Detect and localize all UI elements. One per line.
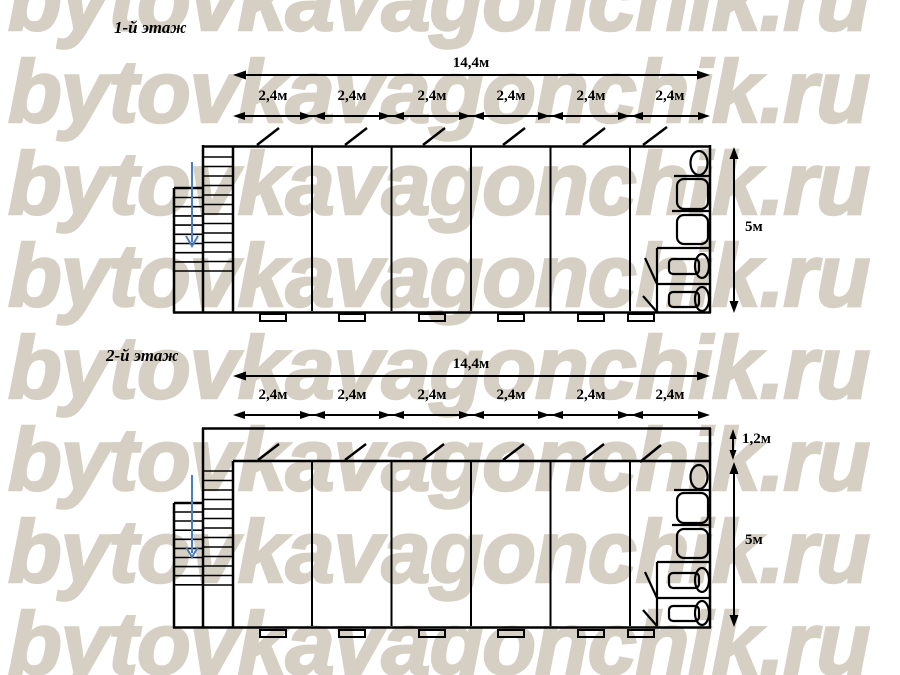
f1-stairs-down-arrow-icon [186, 162, 198, 246]
f1-urinal-icon [695, 287, 709, 311]
f1-height-label: 5м [745, 219, 763, 236]
f2-toilet-icon [677, 529, 708, 558]
f2-door-swings [258, 444, 661, 462]
floor1-title: 1-й этаж [114, 18, 187, 38]
floor2-title: 2-й этаж [106, 346, 179, 366]
floor1-plan [173, 71, 739, 322]
f2-module-width-label: 2,4м [630, 387, 710, 404]
f2-module-width-label: 2,4м [551, 387, 631, 404]
f2-module-dividers [312, 461, 630, 626]
f2-toilet-icon [677, 493, 708, 523]
f1-urinal-icon [695, 254, 709, 278]
f2-height-label: 5м [745, 532, 763, 549]
f2-corridor-width-label: 1,2м [742, 431, 771, 448]
f2-washbasin-icon [691, 465, 708, 489]
f1-foundation-feet [260, 314, 654, 321]
f1-total-width-label: 14,4м [411, 55, 531, 72]
f2-foundation-feet [260, 630, 654, 637]
floor-plan-canvas: bytovkavagonchik.ru bytovkavagonchik.ru … [0, 0, 900, 675]
f1-bathroom-fixtures [643, 151, 709, 312]
f2-module-width-label: 2,4м [471, 387, 551, 404]
f1-module-width-label: 2,4м [471, 88, 551, 105]
f2-dim-modules-arrows [233, 411, 710, 419]
f1-module-width-label: 2,4м [392, 88, 472, 105]
f1-toilet-icon [677, 215, 708, 244]
f2-dim-corridor-arrow [730, 429, 737, 460]
f1-module-width-label: 2,4м [630, 88, 710, 105]
f2-urinal-icon [695, 601, 709, 625]
f2-dim-height-arrow [730, 462, 739, 627]
f2-stairs-down-arrow-icon [186, 475, 198, 557]
f1-module-width-label: 2,4м [233, 88, 313, 105]
f1-module-width-label: 2,4м [551, 88, 631, 105]
f2-module-width-label: 2,4м [392, 387, 472, 404]
f2-total-width-label: 14,4м [411, 356, 531, 373]
f2-bathroom-fixtures [643, 465, 709, 626]
f1-dim-modules-arrows [233, 112, 710, 120]
f1-module-dividers [312, 147, 630, 311]
f1-door-swings [257, 127, 667, 145]
f1-dim-height-arrow [730, 147, 739, 313]
floor2-plan [173, 372, 739, 638]
f2-module-width-label: 2,4м [233, 387, 313, 404]
f1-toilet-icon [677, 179, 708, 209]
f1-washbasin-icon [691, 151, 708, 175]
f2-module-width-label: 2,4м [312, 387, 392, 404]
f1-module-width-label: 2,4м [312, 88, 392, 105]
f2-urinal-icon [695, 568, 709, 592]
